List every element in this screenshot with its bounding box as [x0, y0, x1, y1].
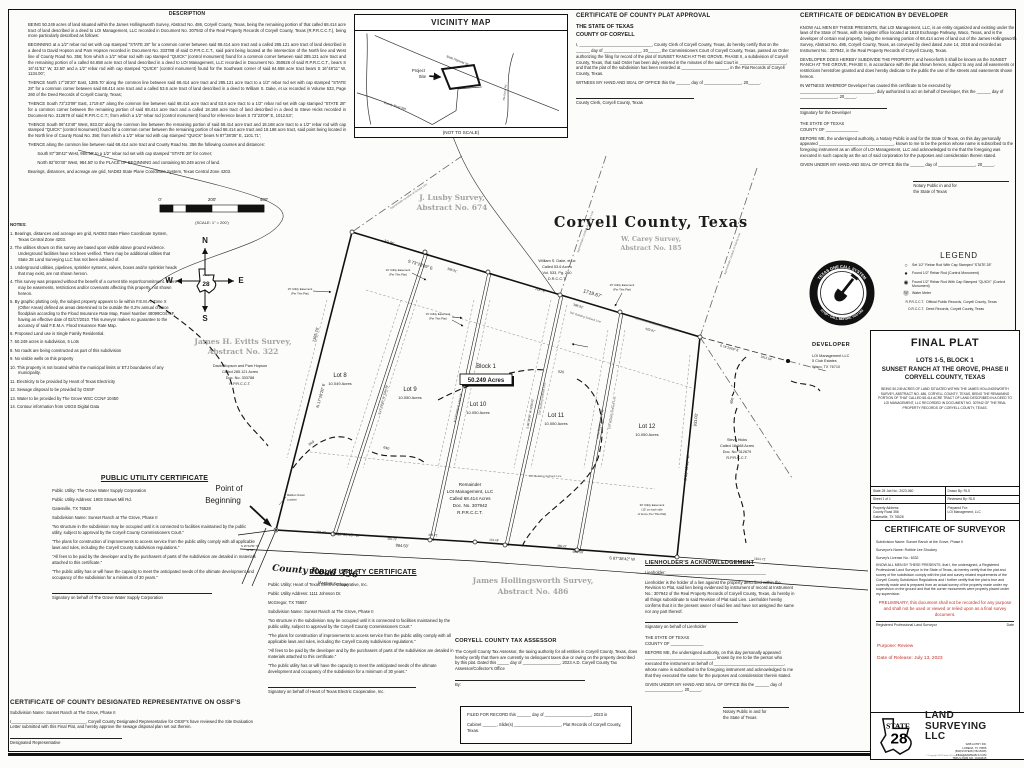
- surveyor-subdivision: Subdivision Name: Sunset Ranch at the Gr…: [876, 540, 1014, 545]
- found-rebar-quick-icon: ◉: [900, 280, 912, 289]
- vicinity-title: VICINITY MAP: [355, 15, 567, 31]
- list-item: 11. Electricity to be provided by Heart …: [10, 379, 178, 385]
- surveyor-name: Surveyor's Name: Robbie Lee Shockey: [876, 548, 1014, 553]
- approval-witness: WITNESS MY HAND AND SEAL OF OFFICE this …: [576, 80, 790, 86]
- list-item: North 82°00'40" West, 984.50' to the PLA…: [28, 160, 346, 166]
- legend-item-text: Set 1/2" Rebar Rod With Cap Stamped "STA…: [912, 263, 992, 269]
- lienholder-cert: LIENHOLDER'S ACKNOWLEDGEMENT Lienholder:…: [645, 560, 795, 721]
- map-label: The Grove Rd: [502, 84, 508, 101]
- dedication-title: CERTIFICATE OF DEDICATION BY DEVELOPER: [800, 12, 1018, 21]
- filed-line2: Cabinet ______, Slide(s) _______________…: [467, 722, 625, 734]
- map-label: County Road 356: [383, 101, 407, 112]
- legend: LEGEND ○ Set 1/2" Rebar Rod With Cap Sta…: [900, 250, 1018, 314]
- utility-sig-label: Signatory on behalf of Heart of Texas El…: [268, 689, 385, 694]
- signature-line: Signatory on behalf of Heart of Texas El…: [268, 687, 416, 695]
- county-line: COUNTY OF ______________: [645, 641, 795, 647]
- utility-lines: Public Utility: Heart of Texas Electric …: [268, 582, 458, 615]
- title-block-table: State 28 Job No.: 2023-060 Drawn By: RLS…: [871, 486, 1019, 521]
- lienholder-body: Lienholder is the holder of a lien again…: [645, 580, 795, 615]
- signature-line: Signatory on behalf of Lienholder: [645, 622, 738, 630]
- list-item: 2. The utilities shown on this survey ar…: [10, 245, 178, 262]
- sheet-cell: Sheet 1 of 1: [871, 496, 946, 504]
- list-item: 12. Sewage disposal to be provided by OS…: [10, 387, 178, 393]
- legend-item: ○ Set 1/2" Rebar Rod With Cap Stamped "S…: [900, 263, 1018, 269]
- abbr-label: D.R.C.C.T.: [900, 307, 926, 312]
- list-item: 1. Bearings, distances and acreage are g…: [10, 231, 178, 243]
- dedication-sig-label: Signatory for the Developer: [800, 110, 851, 115]
- list-item: 3. Underground utilities, pipelines, spr…: [10, 265, 178, 277]
- signature-line: County Clerk, Coryell County, Texas: [576, 98, 694, 106]
- notary-signature: Notary Public in and for the State of Te…: [723, 707, 789, 721]
- list-item: McGregor, TX 76657: [268, 600, 458, 606]
- list-item: "No structure in the subdivision may be …: [52, 524, 257, 536]
- project-site-arrow: [429, 76, 440, 77]
- notary-sig-line2: the State of Texas: [913, 189, 1009, 195]
- list-item: "The public utility has or will have the…: [52, 569, 257, 581]
- list-item: "All fees to be paid by the developer an…: [52, 554, 257, 566]
- list-item: Gatesville, TX 76528: [52, 506, 257, 512]
- copyright-line: © Copyright 2023 State 28 Land Surveying…: [871, 755, 1024, 758]
- tax-assessor-title: CORYELL COUNTY TAX ASSESSOR: [455, 638, 640, 646]
- map-label: State Highway 36: [446, 54, 469, 66]
- final-plat-box: FINAL PLAT LOTS 1-5, BLOCK 1 SUNSET RANC…: [870, 330, 1020, 522]
- utility-lines: Public Utility: The Grove Water Supply C…: [52, 488, 257, 521]
- signature-line: Signatory on behalf of The Grove Water S…: [52, 593, 212, 601]
- final-plat-body: BEING 50.249 ACRES OF LAND SITUATED WITH…: [878, 387, 1012, 410]
- list-item: BEING 50.249 acres of land situated with…: [28, 22, 346, 39]
- list-item: 13. Water to be provided by The Grove WS…: [10, 396, 178, 402]
- dedication-cert: CERTIFICATE OF DEDICATION BY DEVELOPER K…: [800, 12, 1018, 195]
- brand-28: 28: [891, 731, 908, 748]
- property-address-cell: Property Address: County Road 356 Gatesv…: [871, 504, 946, 521]
- sheet-bottom-bar: [8, 753, 1016, 757]
- developer-lines: LOI Management LLC5 Club EstatesWaco, TX…: [812, 354, 870, 371]
- list-item: Public Utility Address: 1111 Johnson Dr.: [268, 591, 458, 597]
- list-item: "The public utility has or will have the…: [268, 663, 458, 675]
- county-plat-approval-title: CERTIFICATE OF COUNTY PLAT APPROVAL: [576, 12, 790, 20]
- utility-cert-title: PUBLIC UTILITY CERTIFICATE: [268, 568, 458, 578]
- final-plat-title: FINAL PLAT: [871, 336, 1019, 351]
- list-item: South 87°38'42" West, 980.50' to a 1/2" …: [28, 151, 346, 157]
- legend-title: LEGEND: [900, 250, 1018, 261]
- brand-state: STATE: [886, 721, 910, 730]
- set-rebar-icon: ○: [900, 263, 912, 269]
- final-plat-subtitle: SUNSET RANCH AT THE GROVE, PHASE II: [871, 366, 1019, 374]
- state28-brand-text: LAND SURVEYING LLC 3268 AUTRY RD.LORENA,…: [925, 711, 986, 760]
- description-title: DESCRIPTION: [28, 11, 346, 18]
- list-item: 6. Proposed Land use is Single Family Re…: [10, 331, 178, 337]
- water-meter-icon: Ⓦ: [900, 291, 912, 297]
- ossf-sig-label: Designated Representative: [10, 740, 61, 745]
- list-item: Public Utility: Heart of Texas Electric …: [268, 582, 458, 588]
- county-line: COUNTY OF CORYELL: [576, 32, 790, 39]
- list-item: THENCE North 17°28'20" East, 1385.70' al…: [28, 80, 346, 97]
- notary-signature: Notary Public in and for the State of Te…: [913, 181, 1009, 195]
- list-item: THENCE South 06°43'40" West, 933.03' alo…: [28, 122, 346, 139]
- developer-title: DEVELOPER: [812, 342, 870, 350]
- map-label: Site: [419, 74, 427, 79]
- public-utility-cert-electric: PUBLIC UTILITY CERTIFICATE Public Utilit…: [268, 568, 458, 695]
- preliminary-note: PRELIMINARY, this document shall not be …: [875, 600, 1015, 618]
- reviewed-by-cell: Reviewed By: RLS: [946, 496, 1020, 504]
- legend-abbr: D.R.C.C.T. Deed Records, Coryell County,…: [900, 307, 1018, 312]
- list-item: BEGINNING at a 1/2" rebar rod set with c…: [28, 42, 346, 77]
- list-item: 10. This property is not located within …: [10, 365, 178, 377]
- legend-item-text: Water Meter: [912, 291, 931, 297]
- list-item: 9. No visible wells on this property: [10, 356, 178, 362]
- release-date-note: Date of Release: July 13, 2023: [877, 656, 1019, 663]
- list-item: Public Utility: The Grove Water Supply C…: [52, 488, 257, 494]
- list-item: Subdivision Name: Sunset Ranch at The Gr…: [268, 609, 458, 615]
- tax-assessor-body: The Coryell County Tax Assessor, the tax…: [455, 649, 640, 672]
- notes-list: 1. Bearings, distances and acreage are g…: [10, 231, 178, 410]
- list-item: THENCE along the common line between sai…: [28, 142, 346, 148]
- description-paragraphs: BEING 50.249 acres of land situated with…: [28, 22, 346, 175]
- vicinity-roads: State Highway 36County Road 356The Grove…: [355, 31, 565, 127]
- list-item: 8. No roads are being constructed as par…: [10, 348, 178, 354]
- approval-body: I, _______________________________, Coun…: [576, 42, 790, 77]
- brand-llc: LLC: [925, 732, 986, 742]
- state-line: THE STATE OF TEXAS: [576, 24, 790, 31]
- list-item: 14. Contour information from USGS Digita…: [10, 404, 178, 410]
- list-item: THENCE South 73°23'09" East, 1719.67' al…: [28, 101, 346, 118]
- surveyor-license: Survey's License No.: 6332: [876, 556, 1014, 561]
- utility-cert-title: PUBLIC UTILITY CERTIFICATE: [52, 474, 257, 484]
- surveyor-cert-title: CERTIFICATE OF SURVEYOR: [871, 524, 1019, 536]
- notary-sig-line2: the State of Texas: [723, 715, 789, 721]
- purpose-note: Purpose: Review: [877, 644, 1019, 651]
- signature-line: By:: [455, 680, 585, 688]
- surveyor-cert-box: CERTIFICATE OF SURVEYOR Subdivision Name…: [870, 520, 1020, 714]
- abbr-text: Official Public Records, Coryell County,…: [926, 300, 997, 305]
- abbr-text: Deed Records, Coryell County, Texas: [926, 307, 984, 312]
- developer-block: DEVELOPER LOI Management LLC5 Club Estat…: [812, 342, 870, 371]
- list-item: "No structure in the subdivision may be …: [268, 618, 458, 630]
- ossf-title: CERTIFICATE OF COUNTY DESIGNATED REPRESE…: [10, 699, 258, 708]
- filed-line1: FILED FOR RECORD this ______ day of ____…: [467, 712, 625, 718]
- final-plat-subtitle: LOTS 1-5, BLOCK 1: [871, 357, 1019, 365]
- ossf-subdivision: Subdivision Name: Sunset Ranch at The Gr…: [10, 710, 258, 716]
- notes-title: NOTES:: [10, 222, 178, 228]
- drawn-by-cell: Drawn By: RLS: [946, 487, 1020, 495]
- list-item: 7. 50.249 acres in subdivision, 5 Lots: [10, 339, 178, 345]
- lienholder-blank: Lienholder:_____________________________…: [645, 570, 795, 576]
- list-item: Bearings, distances, and acreage are gri…: [28, 169, 346, 175]
- found-rebar-icon: ●: [900, 271, 912, 277]
- list-item: 4. This survey was prepared without the …: [10, 279, 178, 296]
- public-utility-cert-water: PUBLIC UTILITY CERTIFICATE Public Utilit…: [52, 474, 257, 601]
- by-label: By:: [455, 682, 461, 687]
- description-block: DESCRIPTION BEING 50.249 acres of land s…: [28, 11, 346, 178]
- signature-line: Designated Representative: [10, 738, 122, 746]
- utility-quotes: "No structure in the subdivision may be …: [268, 618, 458, 675]
- vicinity-map: VICINITY MAP State Highway 36County Road…: [354, 14, 568, 138]
- list-item: Waco, TX 76710: [812, 365, 870, 371]
- list-item: Public Utility Address: 1903 Straws Mill…: [52, 497, 257, 503]
- legend-item-text: Found 1/2" Rebar Rod (Control Monument): [912, 271, 979, 277]
- lienholder-notary: BEFORE ME, the undersigned authority, on…: [645, 650, 795, 679]
- plat-sheet: TEXAS ONE CALL SYSTEM STOP • CALL BEFORE…: [0, 0, 1024, 768]
- county-line: COUNTY OF ______________: [800, 127, 1018, 133]
- list-item: "All fees to be paid by the developer an…: [268, 648, 458, 660]
- job-number-cell: State 28 Job No.: 2023-060: [871, 487, 946, 495]
- dedication-p3: IN WITNESS WHEREOF Developer has caused …: [800, 83, 1018, 100]
- lienholder-sig-label: Signatory on behalf of Lienholder: [645, 624, 706, 629]
- list-item: Subdivision Name: Sunset Ranch at The Gr…: [52, 515, 257, 521]
- surveyor-sig-label: Registered Professional Land Surveyor: [876, 623, 937, 628]
- state28-texas-icon: STATE 28: [875, 717, 923, 755]
- ossf-cert: CERTIFICATE OF COUNTY DESIGNATED REPRESE…: [10, 699, 258, 746]
- list-item: "The plans for construction of improveme…: [268, 633, 458, 645]
- abbr-label: R.P.R.C.C.T.: [900, 300, 926, 305]
- vicinity-scale-note: (NOT TO SCALE): [355, 127, 567, 137]
- dedication-p1: KNOW ALL MEN BY THESE PRESENTS, that LOI…: [800, 25, 1018, 54]
- notes-block: NOTES: 1. Bearings, distances and acreag…: [10, 222, 178, 412]
- county-plat-approval: CERTIFICATE OF COUNTY PLAT APPROVAL THE …: [576, 12, 790, 106]
- ossf-body: I________________________________, Corye…: [10, 719, 258, 731]
- legend-abbr: R.P.R.C.C.T. Official Public Records, Co…: [900, 300, 1018, 305]
- legend-item: ◉ Found 1/2" Rebar Rod With Cap Stamped …: [900, 280, 1018, 289]
- surveyor-date-label: Date: [1007, 623, 1014, 628]
- utility-sig-label: Signatory on behalf of The Grove Water S…: [52, 595, 163, 600]
- dedication-given: GIVEN UNDER MY HAND AND SEAL OF OFFICE t…: [800, 162, 1018, 168]
- approval-sig-label: County Clerk, Coryell County, Texas: [576, 100, 643, 105]
- surveyor-signature-row: Registered Professional Land Surveyor Da…: [876, 621, 1014, 628]
- prepared-for-cell: Prepared For: LOI Management, LLC: [946, 504, 1020, 521]
- legend-item-text: Found 1/2" Rebar Rod With Cap Stamped "Q…: [912, 280, 1018, 289]
- legend-item: ● Found 1/2" Rebar Rod (Control Monument…: [900, 271, 1018, 277]
- lienholder-given: GIVEN UNDER MY HAND AND SEAL OF OFFICE t…: [645, 682, 795, 694]
- state28-logo-box: STATE 28 LAND SURVEYING LLC 3268 AUTRY R…: [870, 712, 1024, 760]
- list-item: 5. By graphic plotting only, the subject…: [10, 299, 178, 328]
- map-label: Project: [412, 68, 426, 73]
- dedication-notary: BEFORE ME, the undersigned authority, a …: [800, 136, 1018, 159]
- utility-quotes: "No structure in the subdivision may be …: [52, 524, 257, 581]
- dedication-p2: DEVELOPER DOES HEREBY SUBDIVIDE THE PROP…: [800, 57, 1018, 80]
- lienholder-title: LIENHOLDER'S ACKNOWLEDGEMENT: [645, 560, 795, 568]
- final-plat-subtitle: CORYELL COUNTY, TEXAS: [871, 374, 1019, 382]
- filed-for-record-box: FILED FOR RECORD this ______ day of ____…: [460, 706, 632, 744]
- tax-assessor-cert: CORYELL COUNTY TAX ASSESSOR The Coryell …: [455, 638, 640, 688]
- legend-item: Ⓦ Water Meter: [900, 291, 1018, 297]
- list-item: "The plans for construction of improveme…: [52, 539, 257, 551]
- surveyor-body: KNOW ALL MEN BY THESE PRESENTS, that I, …: [876, 563, 1014, 597]
- signature-line: Signatory for the Developer: [800, 108, 887, 116]
